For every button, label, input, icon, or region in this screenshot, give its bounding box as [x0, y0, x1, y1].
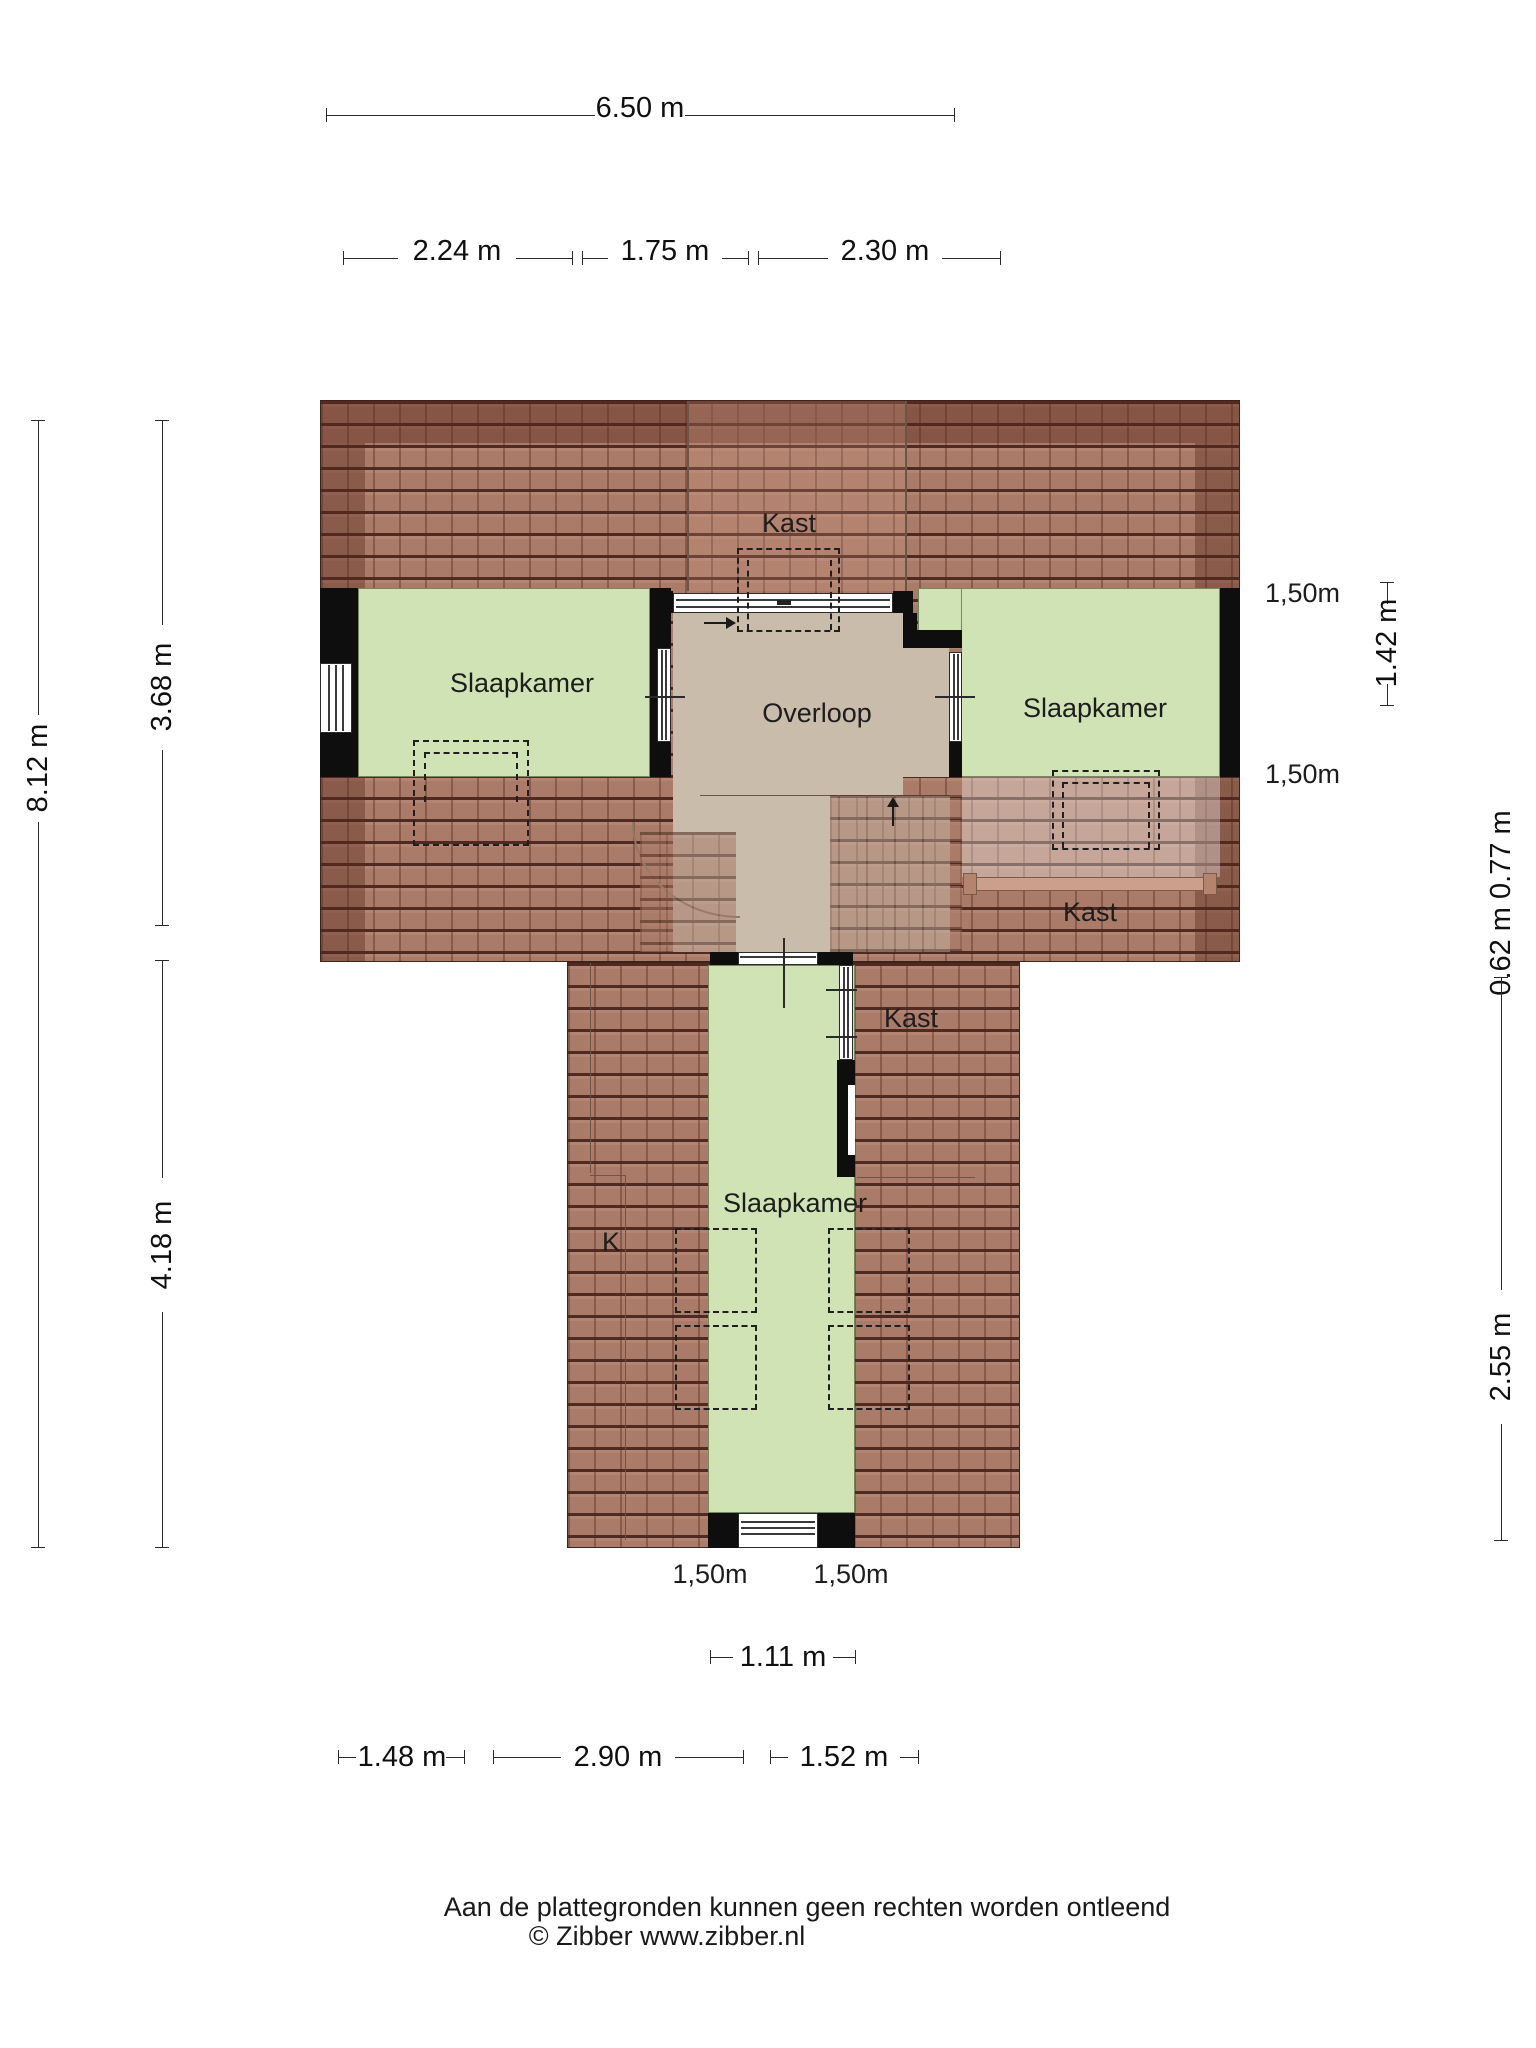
dim-line [685, 115, 954, 116]
window-crossbar-mid-upper [826, 989, 857, 991]
room-label-slaapkamer-left: Slaapkamer [422, 669, 622, 697]
roof-hip-shade-left-lower [321, 777, 365, 961]
closet-rail-end-right [1203, 873, 1217, 895]
dashed-closet-right-room-inner [1062, 782, 1150, 848]
dim-line [770, 1757, 788, 1758]
room-label-slaapkamer-right: Slaapkamer [995, 694, 1195, 722]
room-label-overloop: Overloop [717, 699, 917, 727]
roof-hip-shade-right-upper [1195, 443, 1239, 588]
dim-tick [572, 251, 573, 265]
dim-label-top-mid: 1.75 m [608, 236, 722, 266]
window-glazing-line [741, 1521, 815, 1523]
dim-line [446, 1757, 464, 1758]
dim-line [722, 258, 748, 259]
room-slaapkamer-right [961, 588, 1220, 777]
closet-rail [963, 877, 1217, 891]
dim-tick [743, 1750, 744, 1764]
dim-tick [31, 1547, 45, 1548]
dashed-box-bottom-room-2 [675, 1325, 757, 1410]
window-dormer-flank-left [657, 648, 671, 742]
window-glazing-line [335, 665, 337, 731]
dim-line [675, 1757, 743, 1758]
dim-line [900, 1757, 918, 1758]
wall-overloop-step [903, 630, 962, 648]
dim-label-bottom-left: 1.48 m [345, 1742, 459, 1772]
window-glazing-line [661, 650, 663, 740]
window-glazing-line [665, 650, 667, 740]
dim-label-top-total: 6.50 m [583, 93, 697, 123]
k-room-line-vertical-1 [590, 963, 591, 1173]
footer-copyright: © Zibber www.zibber.nl [467, 1922, 867, 1951]
dim-tick [155, 1547, 169, 1548]
dim-tick [918, 1750, 919, 1764]
room-label-k: K [586, 1228, 636, 1256]
opening-overloop-bottom [738, 952, 818, 965]
dim-label-left-lower: 4.18 m [147, 1175, 177, 1315]
dim-label-left-upper: 3.68 m [147, 617, 177, 757]
dim-line [758, 258, 828, 259]
wall-stem-bottom-right [818, 1513, 855, 1548]
floorplan-page: Kast Slaapkamer Overloop Slaapkamer Kast… [0, 0, 1536, 2048]
dashed-box-bottom-room-3 [828, 1228, 910, 1313]
dashed-box-bottom-room-4 [828, 1325, 910, 1410]
clearance-label-right-bottom: 1,50m [1265, 760, 1375, 788]
dim-label-stem-window: 1.11 m [733, 1642, 833, 1672]
k-room-line-horizontal [590, 1175, 626, 1176]
dim-line [582, 258, 608, 259]
room-label-kast-mid: Kast [861, 1004, 961, 1032]
clearance-label-right-top: 1,50m [1265, 579, 1375, 607]
wall-stem-top-right [818, 952, 853, 965]
window-glazing-line [741, 1533, 815, 1535]
window-glazing-line [328, 665, 330, 731]
dim-line [162, 1312, 163, 1547]
dim-line [1501, 1424, 1502, 1540]
dim-line [38, 822, 39, 1547]
dormer-edge-left [687, 401, 689, 591]
dim-line [493, 1757, 561, 1758]
footer-disclaimer: Aan de plattegronden kunnen geen rechten… [407, 1893, 1207, 1922]
wall-dormer-jamb-left [658, 591, 673, 613]
wall-dormer-jamb-right [893, 591, 913, 613]
dim-label-left-total: 8.12 m [23, 698, 53, 838]
window-crossbar-mid-lower [826, 1036, 857, 1038]
dim-line [942, 258, 1000, 259]
room-slaapkamer-right-upper-patch [918, 588, 962, 631]
dim-tick [464, 1750, 465, 1764]
roof-hip-shade-left-upper [321, 443, 365, 588]
door-opening-mid-kast [848, 1085, 855, 1155]
window-crossbar-right [935, 696, 975, 698]
dim-line [326, 115, 595, 116]
closet-rail-end-left [963, 873, 977, 895]
window-glazing-line [741, 1527, 815, 1529]
dim-line [516, 258, 572, 259]
window-mid-kast [839, 965, 853, 1060]
dashed-closet-top-kast-inner-left [747, 560, 749, 630]
dim-label-top-right: 2.30 m [828, 236, 942, 266]
dim-tick [855, 1650, 856, 1664]
window-glazing-line [843, 967, 845, 1058]
wall-flank-right-lower [949, 742, 962, 777]
clearance-label-bottom-left: 1,50m [653, 1560, 767, 1588]
dim-line [1387, 684, 1388, 705]
dormer-edge-right [905, 401, 907, 591]
dim-label-bottom-right: 1.52 m [787, 1742, 901, 1772]
door-leaf-line [783, 938, 785, 1008]
entry-arrow-icon [726, 617, 736, 629]
entry-arrow-line [704, 622, 726, 624]
window-glazing-line [740, 956, 816, 958]
dim-label-right-lower: 2.55 m [1486, 1287, 1516, 1427]
room-label-slaapkamer-bottom: Slaapkamer [695, 1189, 895, 1217]
dim-line [162, 960, 163, 1178]
clearance-label-bottom-right: 1,50m [794, 1560, 908, 1588]
wall-stem-top-left [710, 952, 738, 965]
dim-tick [748, 251, 749, 265]
wall-right-exterior [1220, 588, 1240, 777]
dim-label-bottom-mid: 2.90 m [561, 1742, 675, 1772]
room-label-kast-top: Kast [739, 509, 839, 537]
roof-over-stairs-right [830, 795, 962, 952]
dim-tick [1494, 1540, 1508, 1541]
window-stem-bottom [738, 1513, 818, 1548]
dim-line [162, 750, 163, 925]
dim-tick [954, 108, 955, 122]
wall-stem-bottom-left [708, 1513, 738, 1548]
dim-line [1501, 977, 1502, 1290]
dim-tick [1000, 251, 1001, 265]
stairs-arrow-icon [887, 797, 899, 807]
dim-label-top-left: 2.24 m [400, 236, 514, 266]
mid-kast-bottom-line [857, 1177, 975, 1178]
dim-line [38, 420, 39, 715]
dim-line [162, 420, 163, 625]
window-crossbar-left [645, 696, 685, 698]
room-label-kast-right: Kast [1040, 898, 1140, 926]
dashed-box-bottom-room-1 [675, 1228, 757, 1313]
dim-tick [1380, 705, 1394, 706]
dim-line [833, 1657, 855, 1658]
dim-line [710, 1657, 733, 1658]
window-glazing-line [847, 967, 849, 1058]
dashed-closet-top-kast-inner-right [830, 560, 832, 630]
dashed-closet-top-kast [737, 548, 840, 632]
roof-over-stairs-left [640, 832, 736, 952]
dim-tick [155, 925, 169, 926]
dashed-closet-left-room-inner [424, 752, 518, 802]
window-glazing-line [342, 665, 344, 731]
stairs-arrow-line [892, 806, 894, 826]
dim-line [343, 258, 398, 259]
